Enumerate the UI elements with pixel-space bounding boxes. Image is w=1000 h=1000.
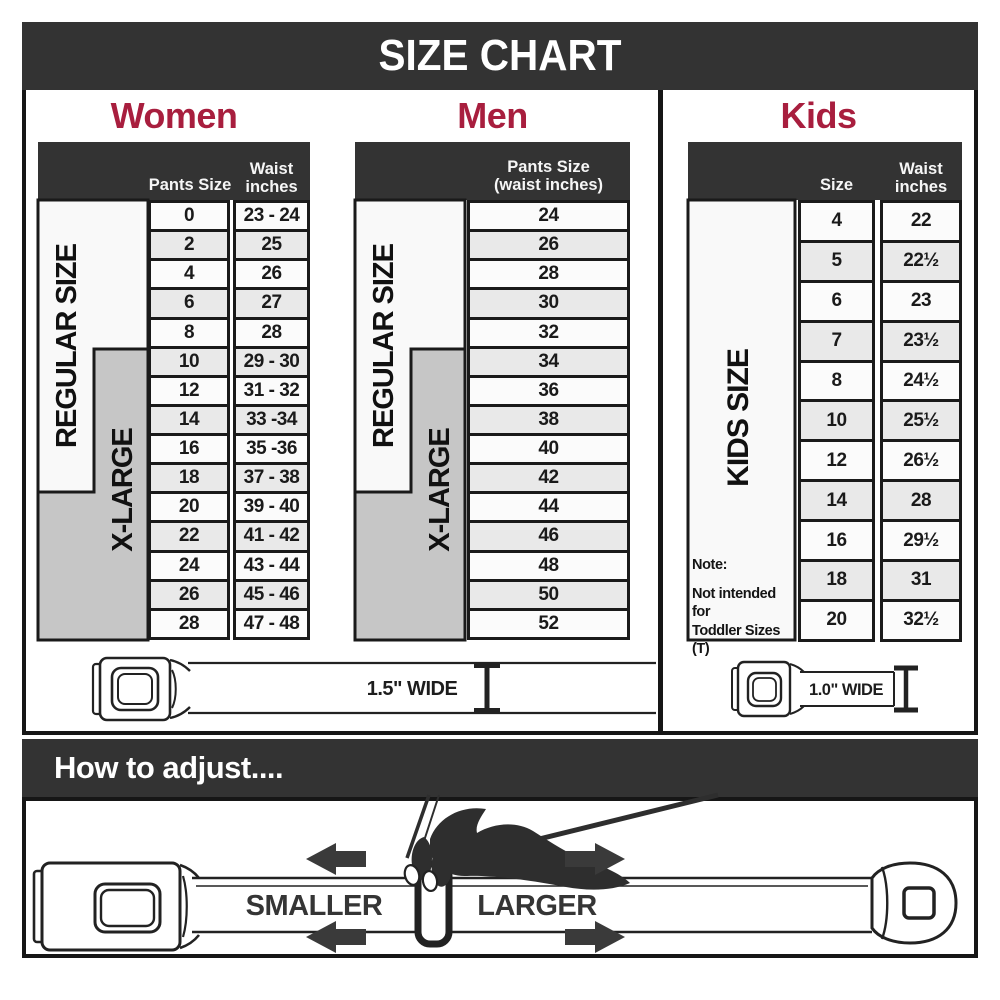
table-cell: 12 xyxy=(148,375,230,407)
adult-belt-illustration: 1.5" WIDE xyxy=(38,650,658,732)
table-cell: 0 xyxy=(148,200,230,232)
page-title: SIZE CHART xyxy=(379,31,622,81)
table-cell: 28 xyxy=(148,608,230,640)
table-cell: 24 xyxy=(148,550,230,582)
seatbelt-buckle-icon xyxy=(732,662,804,716)
kids-belt-illustration: 1.0" WIDE xyxy=(688,650,962,730)
table-cell: 29 - 30 xyxy=(233,346,310,378)
table-cell: 45 - 46 xyxy=(233,579,310,611)
men-table-header: Pants Size (waist inches) xyxy=(355,142,630,200)
table-cell: 22 xyxy=(880,200,962,243)
table-cell: 25 xyxy=(233,229,310,261)
women-waist-column: 23 - 242526272829 - 3031 - 3233 -3435 -3… xyxy=(233,200,310,640)
table-cell: 27 xyxy=(233,287,310,319)
table-cell: 28 xyxy=(880,479,962,522)
table-cell: 10 xyxy=(798,399,875,442)
table-cell: 26 xyxy=(233,258,310,290)
table-cell: 8 xyxy=(798,360,875,403)
table-cell: 5 xyxy=(798,240,875,283)
kids-size-column: 45678101214161820 xyxy=(798,200,875,642)
table-cell: 26½ xyxy=(880,439,962,482)
seatbelt-buckle-icon xyxy=(93,658,190,720)
table-cell: 7 xyxy=(798,320,875,363)
table-cell: 22 xyxy=(148,520,230,552)
table-cell: 44 xyxy=(467,491,630,523)
kids-heading: Kids xyxy=(663,94,974,138)
table-cell: 37 - 38 xyxy=(233,462,310,494)
kids-belt-width-label: 1.0" WIDE xyxy=(809,681,883,699)
adjust-illustration: SMALLER LARGER xyxy=(26,801,974,954)
table-cell: 41 - 42 xyxy=(233,520,310,552)
table-cell: 23½ xyxy=(880,320,962,363)
table-cell: 23 xyxy=(880,280,962,323)
table-cell: 25½ xyxy=(880,399,962,442)
men-xlarge-label: X-LARGE xyxy=(424,428,456,552)
table-cell: 6 xyxy=(148,287,230,319)
adult-belt-width-label: 1.5" WIDE xyxy=(367,678,458,700)
table-cell: 32 xyxy=(467,317,630,349)
women-heading: Women xyxy=(38,94,310,138)
how-to-adjust-heading: How to adjust.... xyxy=(54,750,283,786)
smaller-label: SMALLER xyxy=(246,890,383,922)
belt-tongue-icon xyxy=(872,863,956,943)
table-cell: 33 -34 xyxy=(233,404,310,436)
table-cell: 20 xyxy=(148,491,230,523)
table-cell: 31 - 32 xyxy=(233,375,310,407)
arrow-left-icon xyxy=(306,843,366,875)
arrow-left-icon xyxy=(306,921,366,953)
table-cell: 18 xyxy=(148,462,230,494)
table-cell: 6 xyxy=(798,280,875,323)
arrow-right-icon xyxy=(565,921,625,953)
table-cell: 2 xyxy=(148,229,230,261)
women-xlarge-label: X-LARGE xyxy=(107,428,139,552)
size-chart-page: SIZE CHART Women Men Kids Pants Size Wai… xyxy=(0,0,1000,1000)
table-cell: 36 xyxy=(467,375,630,407)
women-regular-label: REGULAR SIZE xyxy=(51,243,83,448)
table-cell: 29½ xyxy=(880,519,962,562)
women-size-group-labels: REGULAR SIZE X-LARGE xyxy=(38,200,148,642)
table-cell: 28 xyxy=(233,317,310,349)
table-cell: 52 xyxy=(467,608,630,640)
table-cell: 20 xyxy=(798,599,875,642)
table-cell: 24½ xyxy=(880,360,962,403)
table-cell: 8 xyxy=(148,317,230,349)
kids-waist-column: 2222½2323½24½25½26½2829½3132½ xyxy=(880,200,962,642)
kids-note: Note: Not intended for Toddler Sizes (T) xyxy=(692,556,794,659)
width-measure-icon xyxy=(474,665,500,711)
larger-label: LARGER xyxy=(477,890,597,922)
panel-divider xyxy=(658,90,663,735)
men-regular-label: REGULAR SIZE xyxy=(368,243,400,448)
table-cell: 47 - 48 xyxy=(233,608,310,640)
men-size-group-labels: REGULAR SIZE X-LARGE xyxy=(355,200,465,642)
women-table-header: Pants Size Waist inches xyxy=(38,142,310,200)
table-cell: 38 xyxy=(467,404,630,436)
title-bar: SIZE CHART xyxy=(22,22,978,90)
table-cell: 40 xyxy=(467,433,630,465)
women-col2-header: Waist inches xyxy=(233,160,310,196)
table-cell: 14 xyxy=(148,404,230,436)
seatbelt-buckle-icon xyxy=(34,863,199,950)
table-cell: 30 xyxy=(467,287,630,319)
table-cell: 50 xyxy=(467,579,630,611)
women-col1-header: Pants Size xyxy=(148,176,232,194)
table-cell: 39 - 40 xyxy=(233,491,310,523)
kids-size-label: KIDS SIZE xyxy=(722,349,755,487)
table-cell: 4 xyxy=(148,258,230,290)
table-cell: 32½ xyxy=(880,599,962,642)
table-cell: 4 xyxy=(798,200,875,243)
table-cell: 42 xyxy=(467,462,630,494)
table-cell: 31 xyxy=(880,559,962,602)
table-cell: 26 xyxy=(467,229,630,261)
table-cell: 48 xyxy=(467,550,630,582)
men-col-header: Pants Size (waist inches) xyxy=(467,158,630,194)
table-cell: 34 xyxy=(467,346,630,378)
kids-table-header: Size Waist inches xyxy=(688,142,962,200)
table-cell: 23 - 24 xyxy=(233,200,310,232)
kids-col1-header: Size xyxy=(798,176,875,194)
table-cell: 16 xyxy=(148,433,230,465)
table-cell: 14 xyxy=(798,479,875,522)
width-measure-icon xyxy=(894,668,918,710)
table-cell: 43 - 44 xyxy=(233,550,310,582)
kids-col2-header: Waist inches xyxy=(880,160,962,196)
how-to-adjust-bar: How to adjust.... xyxy=(22,739,978,797)
table-cell: 35 -36 xyxy=(233,433,310,465)
table-cell: 28 xyxy=(467,258,630,290)
table-cell: 26 xyxy=(148,579,230,611)
men-heading: Men xyxy=(355,94,630,138)
women-size-column: 0246810121416182022242628 xyxy=(148,200,230,640)
table-cell: 46 xyxy=(467,520,630,552)
men-size-column: 242628303234363840424446485052 xyxy=(467,200,630,640)
table-cell: 18 xyxy=(798,559,875,602)
table-cell: 22½ xyxy=(880,240,962,283)
table-cell: 16 xyxy=(798,519,875,562)
table-cell: 24 xyxy=(467,200,630,232)
table-cell: 12 xyxy=(798,439,875,482)
table-cell: 10 xyxy=(148,346,230,378)
